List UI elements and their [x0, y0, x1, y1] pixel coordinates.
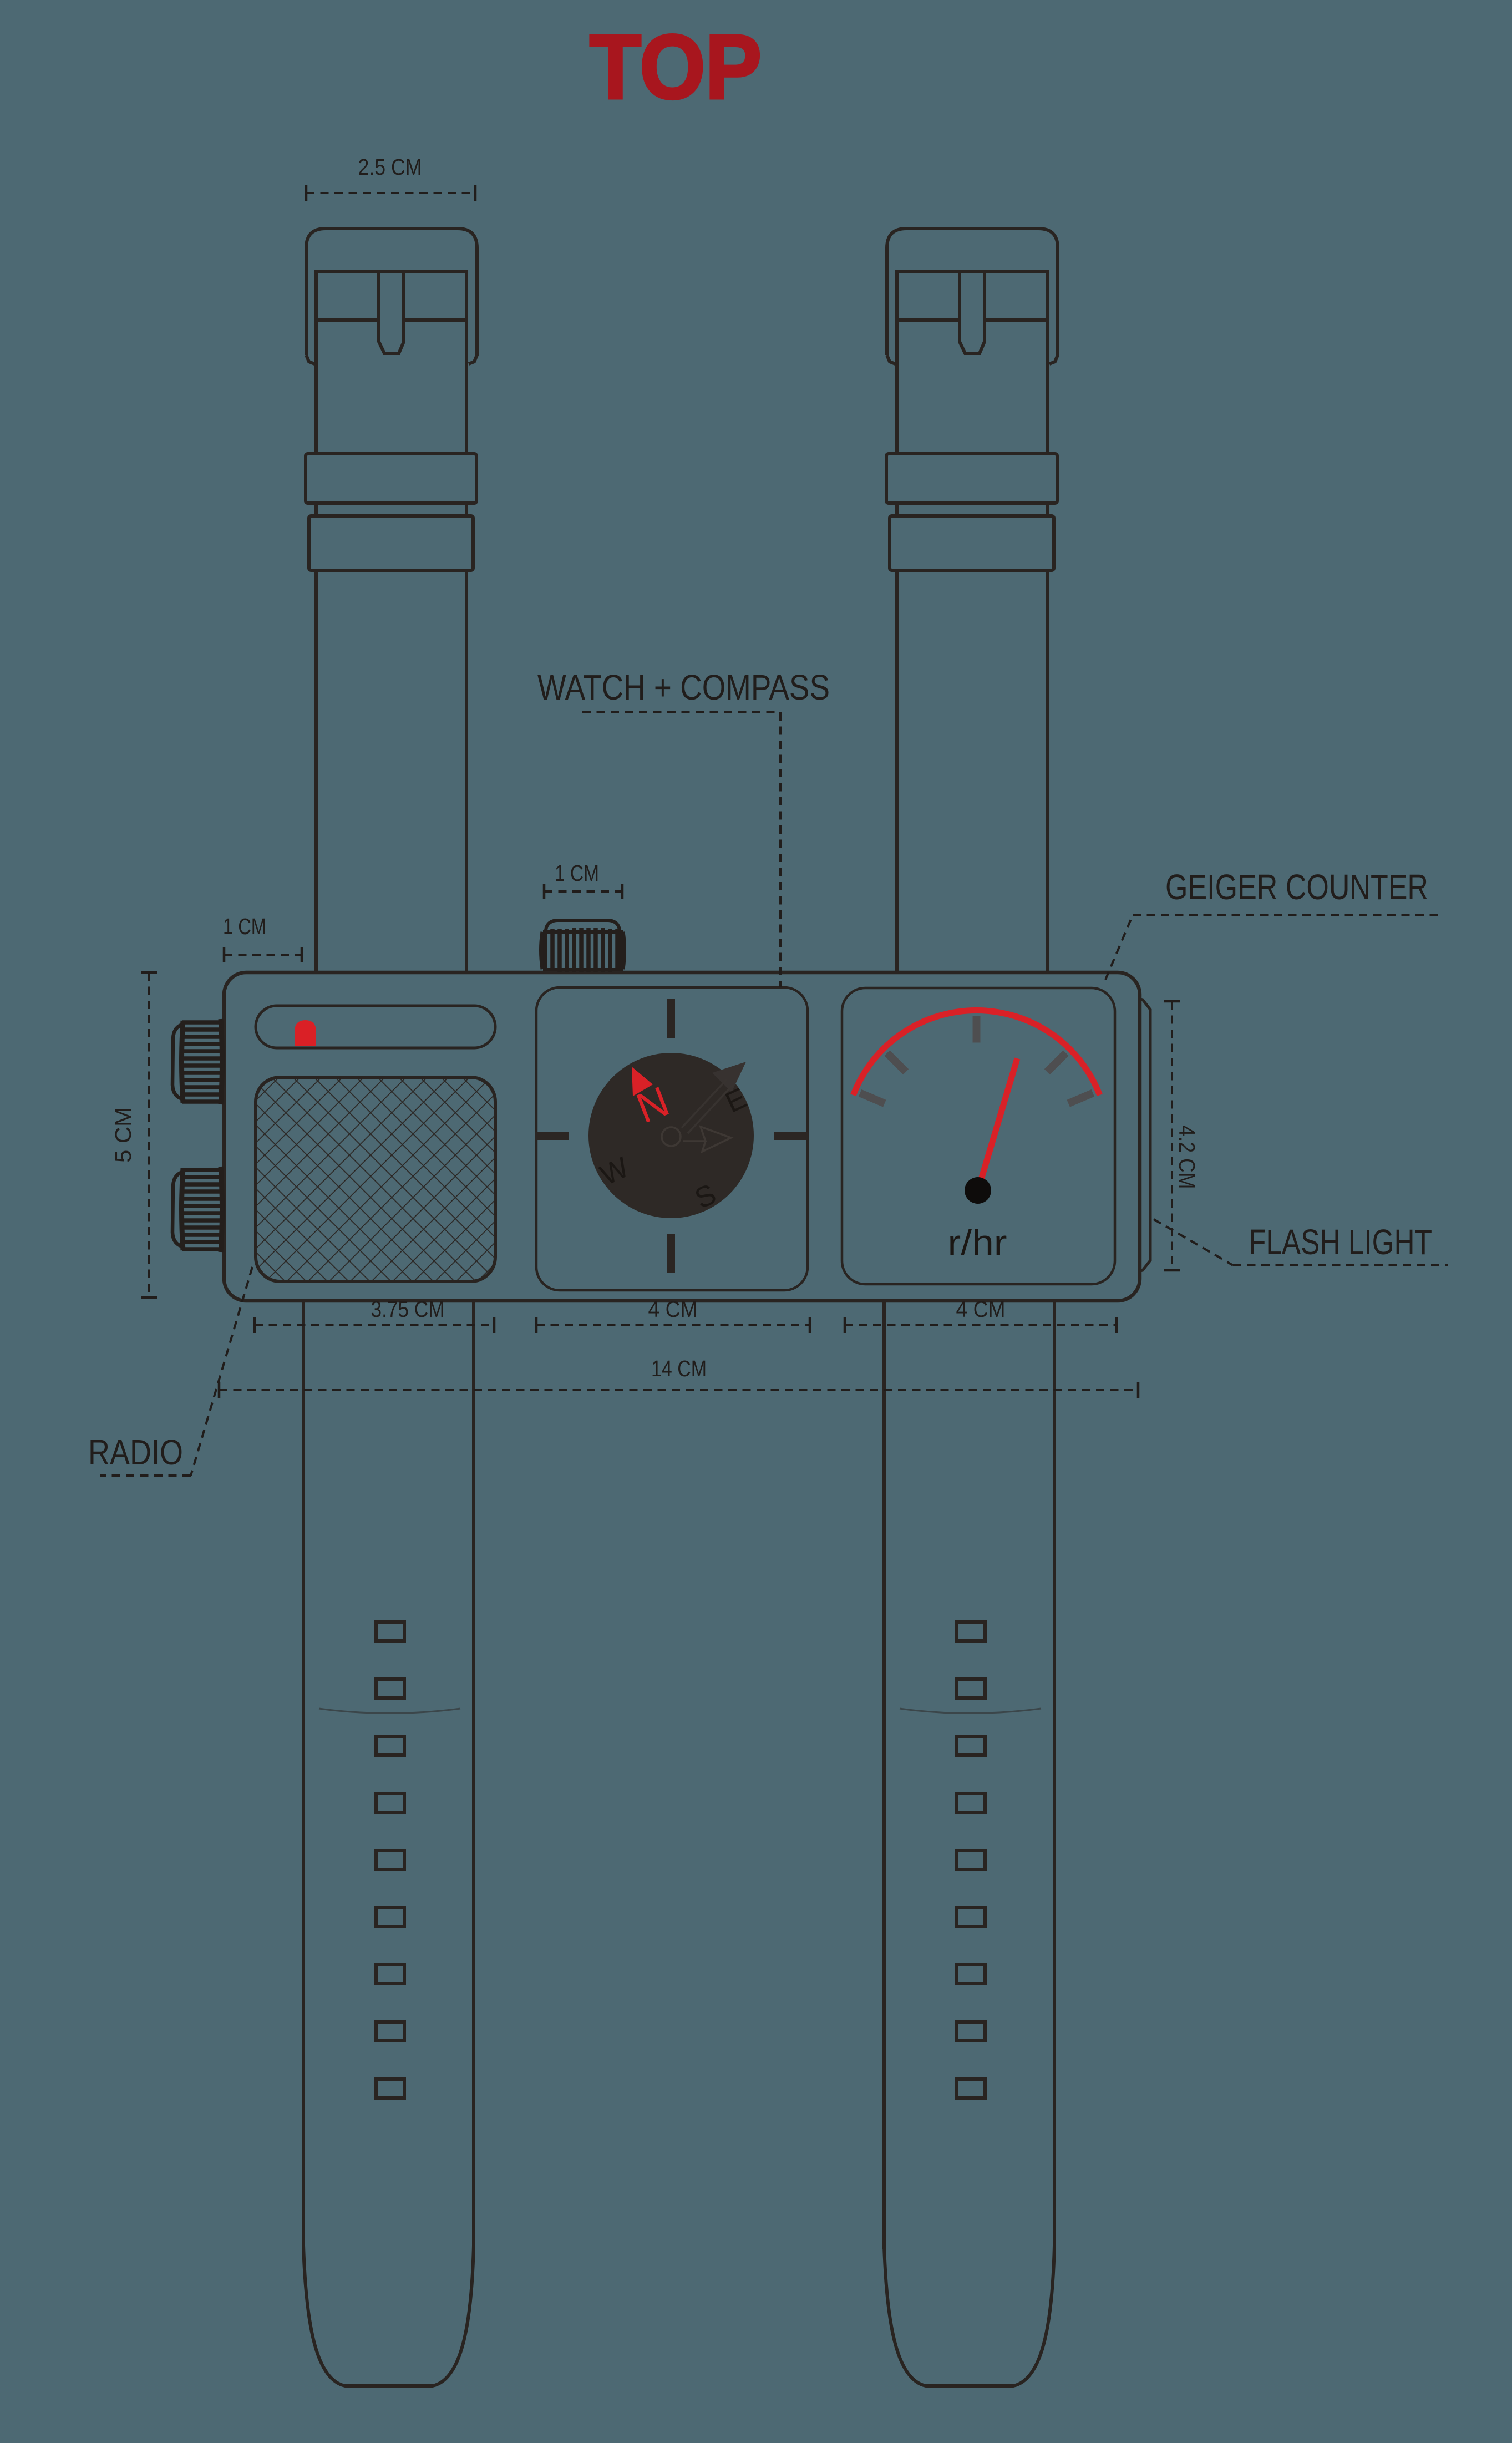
svg-text:TOP: TOP — [590, 16, 762, 118]
svg-text:1 CM: 1 CM — [555, 860, 599, 886]
svg-text:5 CM: 5 CM — [110, 1107, 136, 1163]
svg-text:WATCH + COMPASS: WATCH + COMPASS — [537, 667, 830, 707]
svg-text:GEIGER COUNTER: GEIGER COUNTER — [1165, 867, 1428, 907]
svg-text:4 CM: 4 CM — [956, 1296, 1006, 1322]
svg-text:1 CM: 1 CM — [223, 914, 266, 939]
svg-text:14 CM: 14 CM — [651, 1356, 707, 1381]
svg-text:FLASH LIGHT: FLASH LIGHT — [1249, 1222, 1432, 1262]
svg-text:4 CM: 4 CM — [648, 1296, 698, 1322]
svg-text:3.75 CM: 3.75 CM — [371, 1296, 445, 1322]
svg-text:r/hr: r/hr — [948, 1223, 1007, 1263]
svg-text:4.2 CM: 4.2 CM — [1174, 1126, 1200, 1189]
svg-text:RADIO: RADIO — [88, 1432, 183, 1472]
svg-text:2.5 CM: 2.5 CM — [358, 154, 422, 180]
